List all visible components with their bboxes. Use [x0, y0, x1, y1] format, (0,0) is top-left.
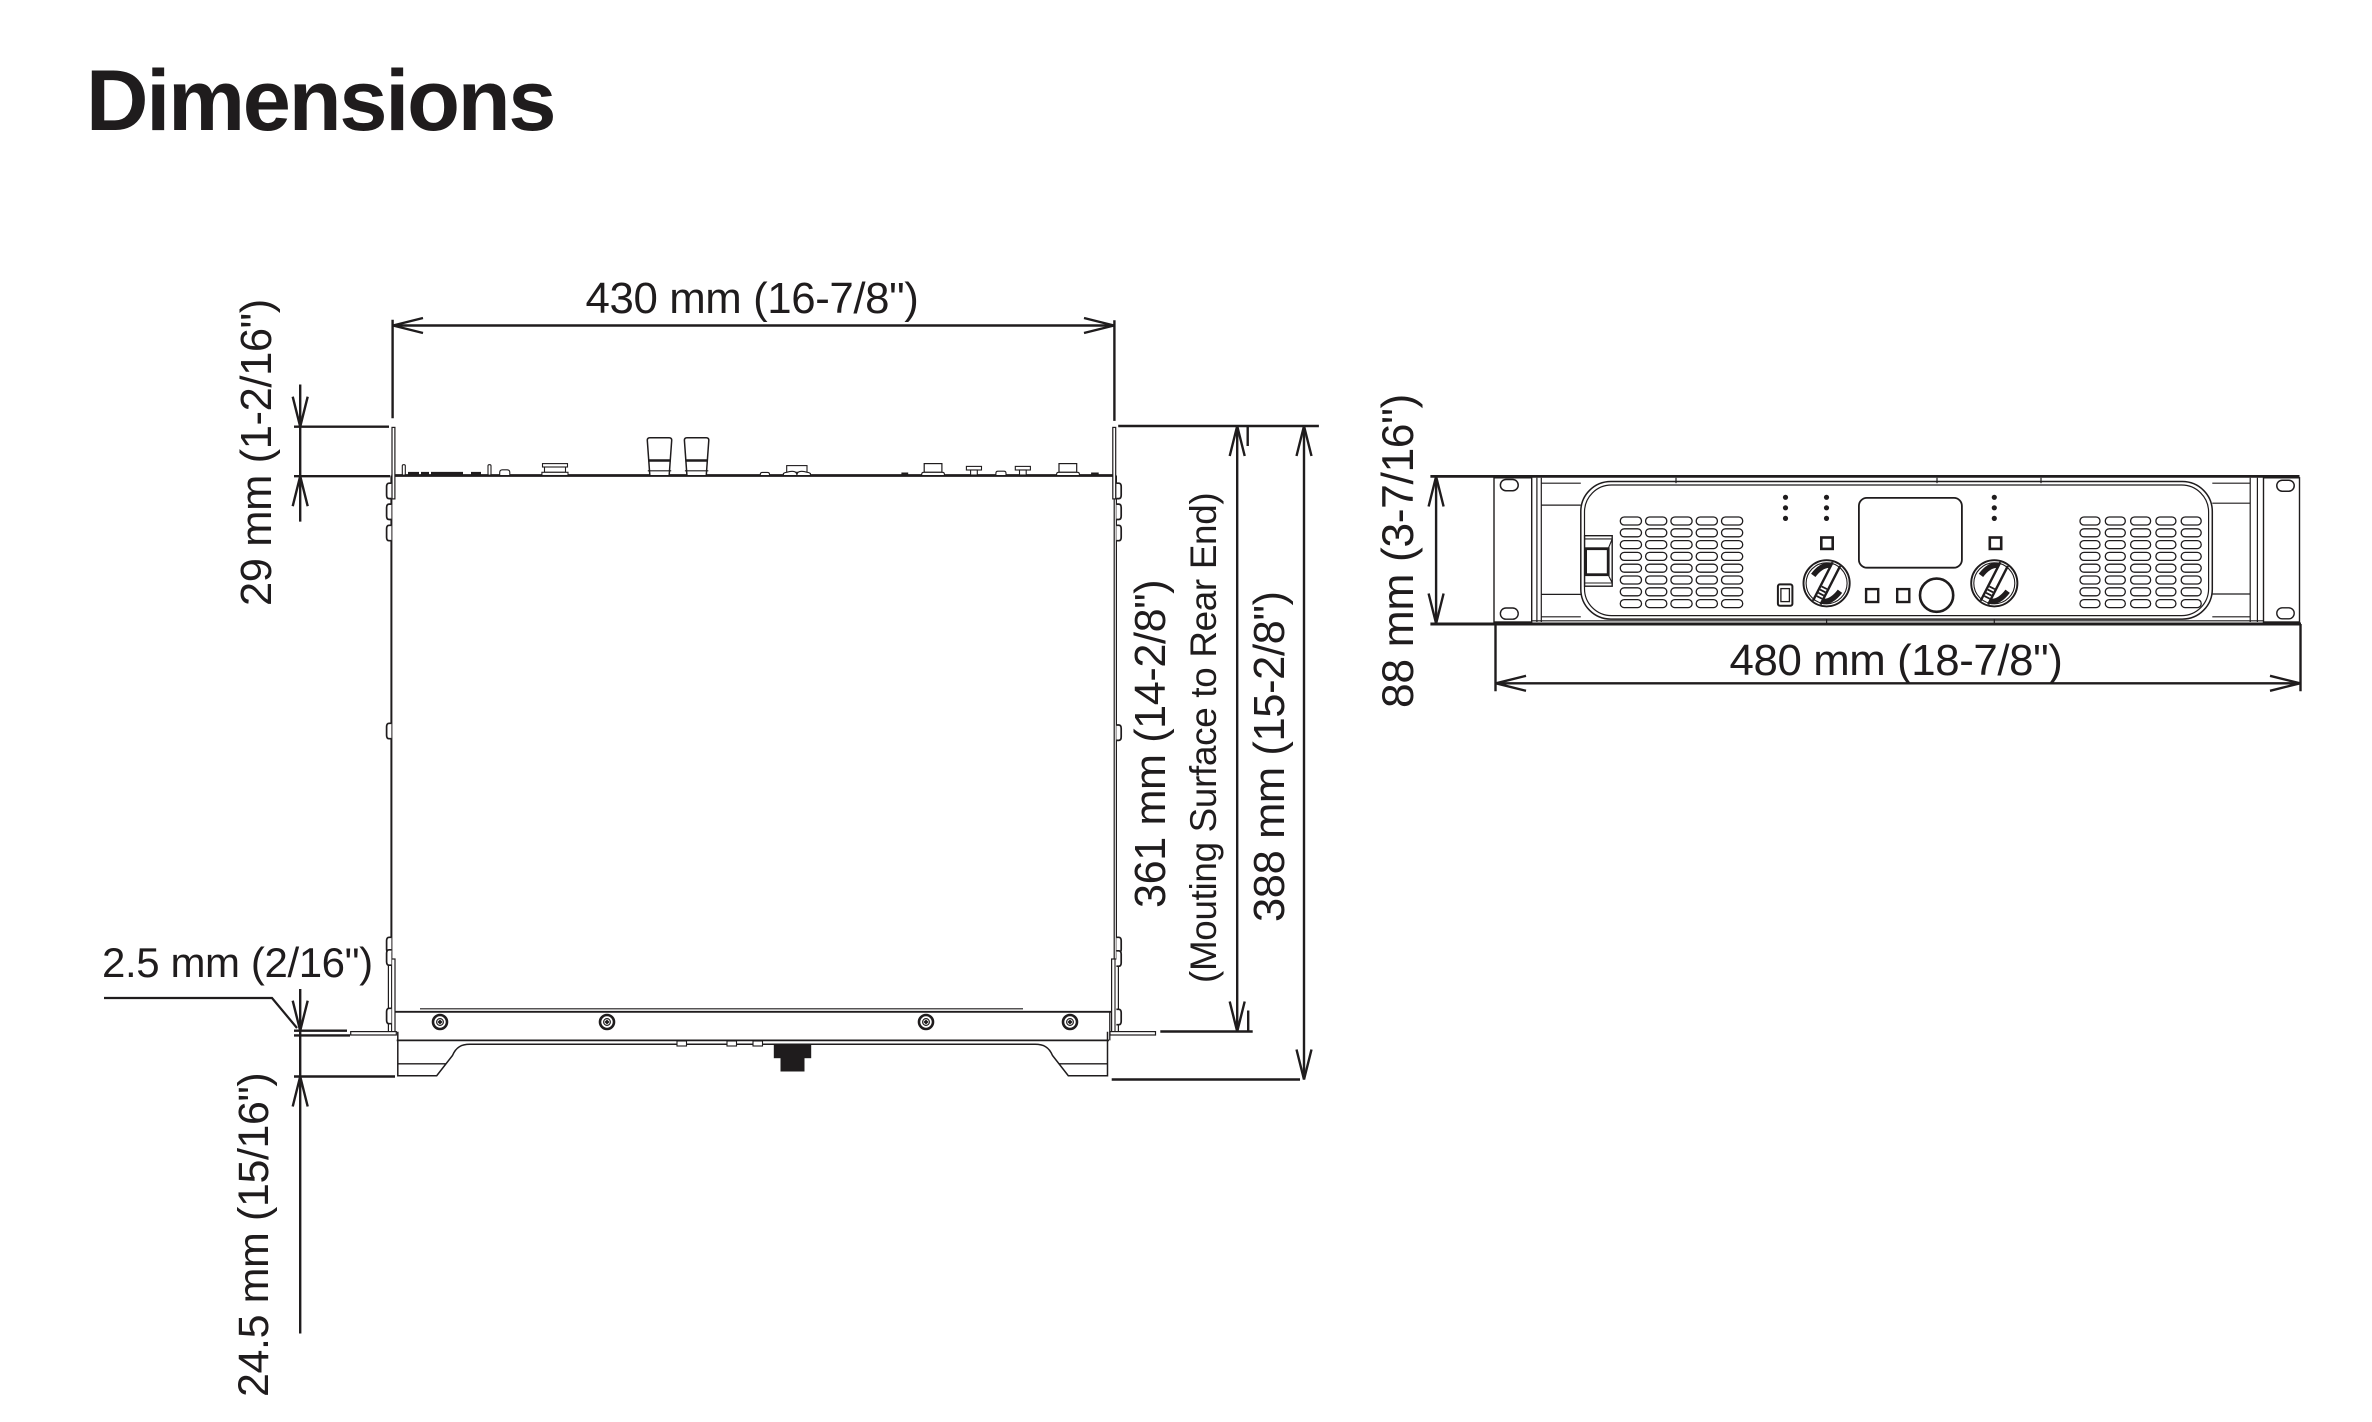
svg-text:88 mm (3-7/16"): 88 mm (3-7/16")	[1374, 394, 1423, 708]
svg-text:Dimensions: Dimensions	[86, 53, 554, 149]
svg-text:361 mm (14-2/8"): 361 mm (14-2/8")	[1127, 580, 1175, 908]
svg-text:2.5 mm (2/16"): 2.5 mm (2/16")	[102, 939, 373, 986]
svg-text:(Mouting Surface to Rear End): (Mouting Surface to Rear End)	[1183, 493, 1224, 983]
svg-text:24.5 mm (15/16"): 24.5 mm (15/16")	[230, 1073, 278, 1397]
svg-text:388 mm (15-2/8"): 388 mm (15-2/8")	[1246, 591, 1294, 922]
svg-text:480 mm (18-7/8"): 480 mm (18-7/8")	[1730, 636, 2063, 685]
svg-text:430 mm (16-7/8"): 430 mm (16-7/8")	[586, 274, 919, 323]
svg-text:29 mm (1-2/16"): 29 mm (1-2/16")	[233, 299, 281, 606]
